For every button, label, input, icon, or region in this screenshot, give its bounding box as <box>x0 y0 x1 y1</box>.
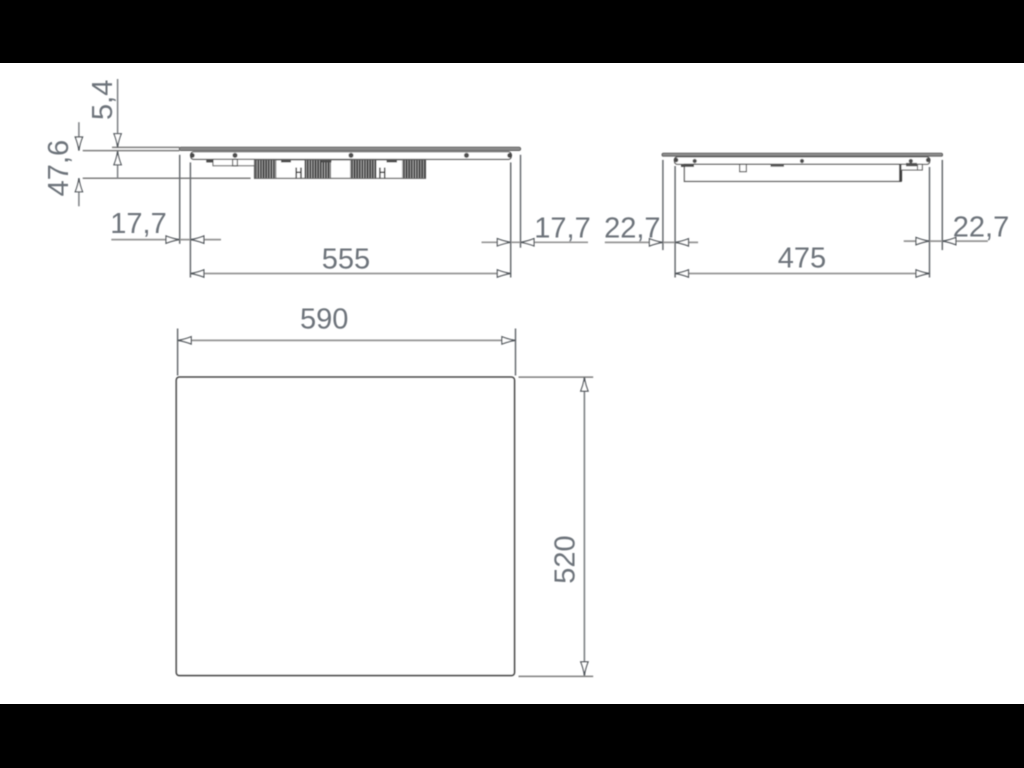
svg-text:22,7: 22,7 <box>953 211 1009 243</box>
svg-text:17,7: 17,7 <box>534 213 590 245</box>
svg-text:22,7: 22,7 <box>604 212 660 244</box>
svg-text:47,6: 47,6 <box>43 140 75 196</box>
svg-text:555: 555 <box>322 244 370 276</box>
svg-text:520: 520 <box>549 535 581 583</box>
svg-text:17,7: 17,7 <box>110 208 166 240</box>
svg-text:590: 590 <box>300 304 348 336</box>
svg-text:475: 475 <box>778 243 826 275</box>
svg-text:5,4: 5,4 <box>87 80 119 120</box>
